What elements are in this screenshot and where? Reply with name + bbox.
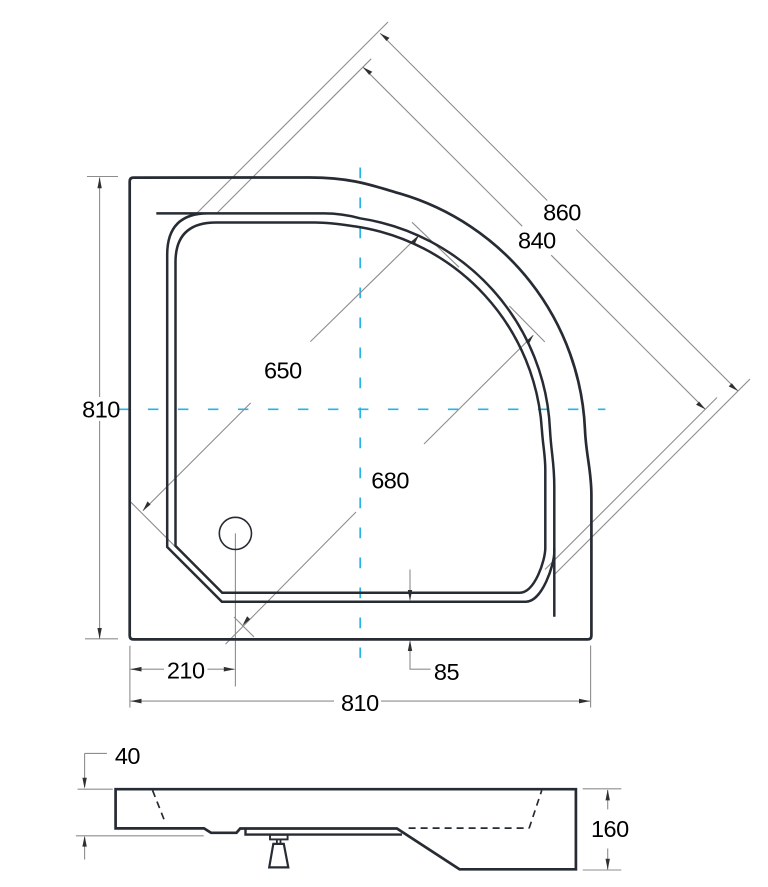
svg-text:810: 810 [341, 690, 379, 716]
svg-text:40: 40 [115, 743, 141, 769]
svg-text:650: 650 [264, 357, 302, 383]
svg-text:85: 85 [434, 659, 460, 685]
svg-text:840: 840 [518, 227, 556, 253]
svg-text:810: 810 [82, 397, 120, 423]
svg-text:160: 160 [591, 816, 629, 842]
svg-text:860: 860 [543, 200, 581, 226]
svg-text:210: 210 [167, 658, 205, 684]
svg-text:680: 680 [371, 467, 409, 493]
